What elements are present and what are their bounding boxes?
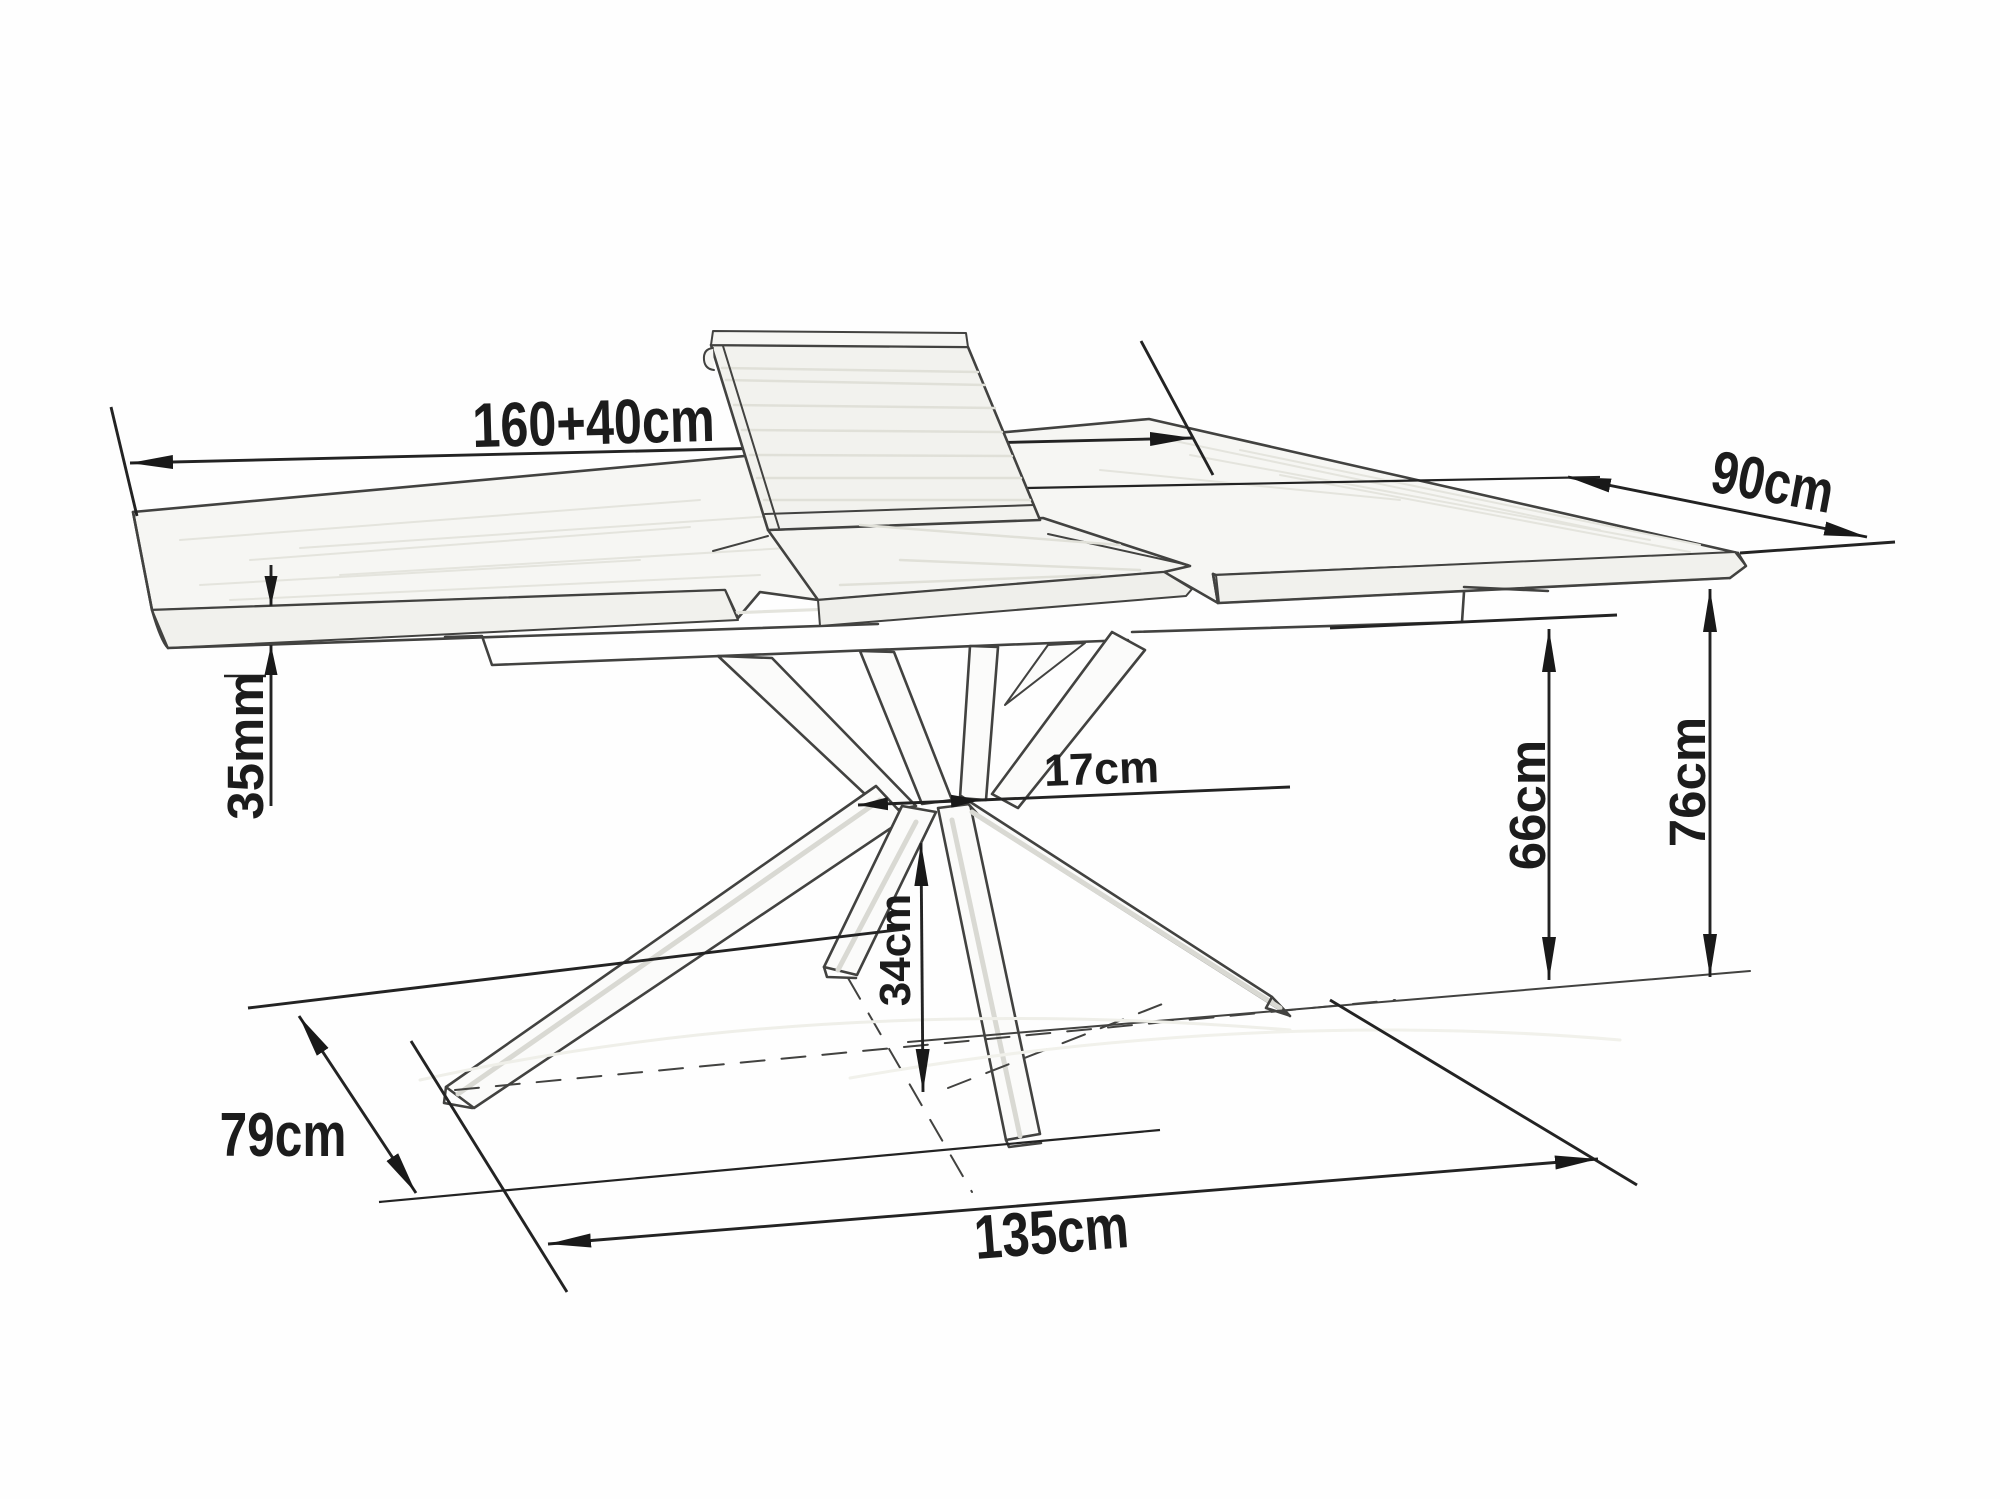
svg-text:79cm: 79cm [220, 1100, 347, 1170]
svg-text:66cm: 66cm [1499, 740, 1556, 870]
svg-text:76cm: 76cm [1659, 717, 1716, 847]
svg-text:135cm: 135cm [972, 1191, 1131, 1272]
svg-text:17cm: 17cm [1043, 741, 1160, 796]
svg-text:34cm: 34cm [871, 894, 920, 1007]
svg-text:160+40cm: 160+40cm [471, 385, 715, 462]
svg-text:35mm: 35mm [217, 672, 274, 819]
